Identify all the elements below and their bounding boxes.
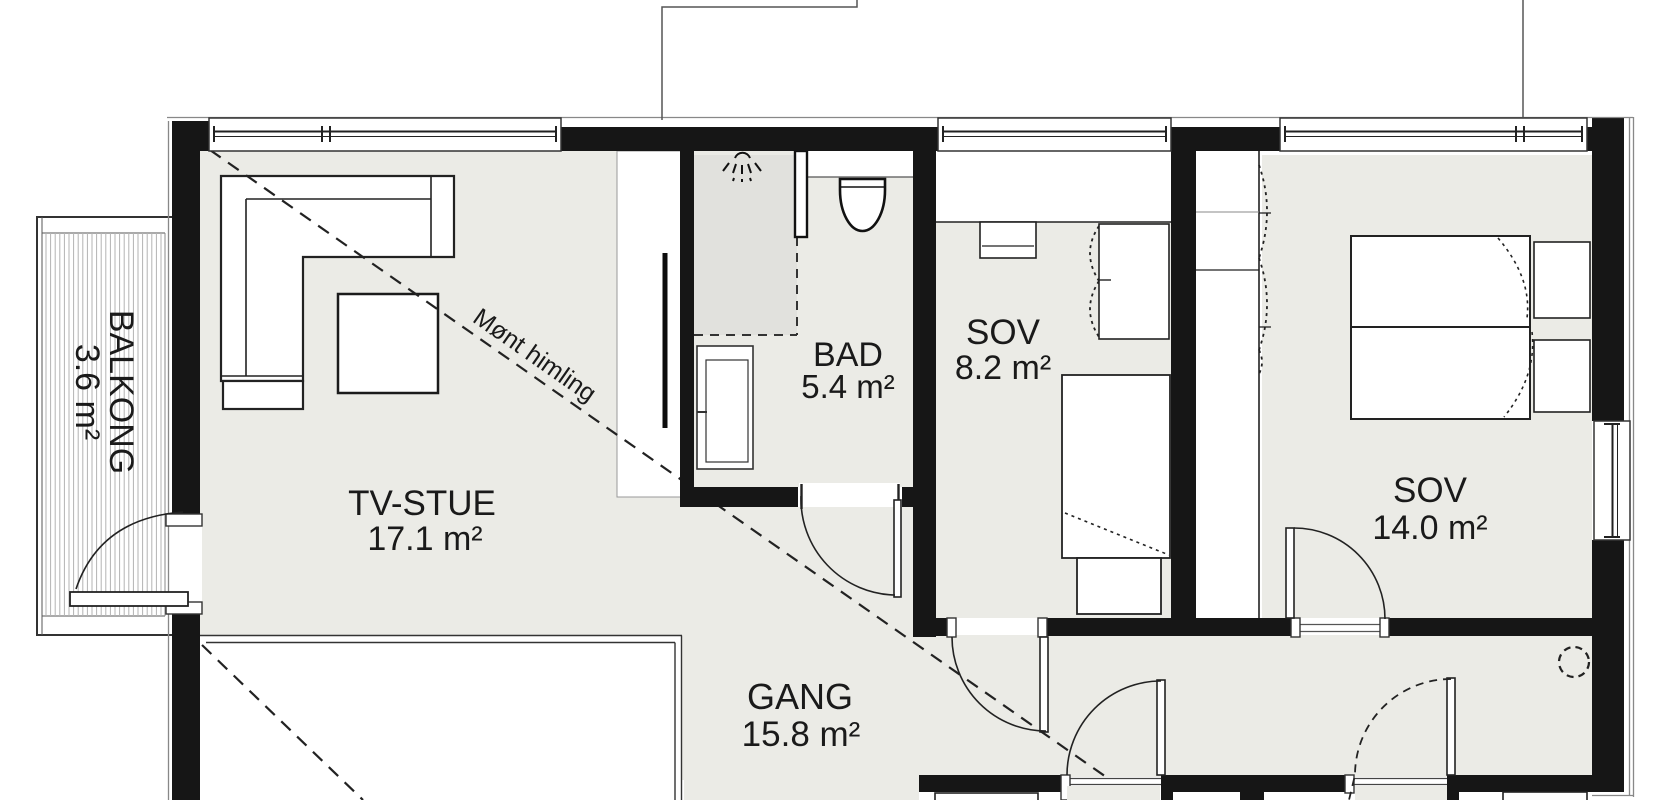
svg-text:17.1 m²: 17.1 m² — [367, 520, 482, 558]
svg-text:15.8 m²: 15.8 m² — [742, 715, 861, 754]
svg-text:BALKONG: BALKONG — [102, 310, 140, 474]
svg-text:5.4 m²: 5.4 m² — [801, 368, 895, 405]
svg-text:TV-STUE: TV-STUE — [348, 484, 496, 523]
svg-text:SOV: SOV — [1393, 471, 1468, 510]
svg-text:GANG: GANG — [747, 676, 853, 717]
svg-text:14.0 m²: 14.0 m² — [1372, 509, 1487, 547]
svg-text:SOV: SOV — [966, 313, 1041, 352]
svg-text:8.2 m²: 8.2 m² — [955, 349, 1051, 387]
svg-text:3.6 m²: 3.6 m² — [68, 344, 106, 440]
